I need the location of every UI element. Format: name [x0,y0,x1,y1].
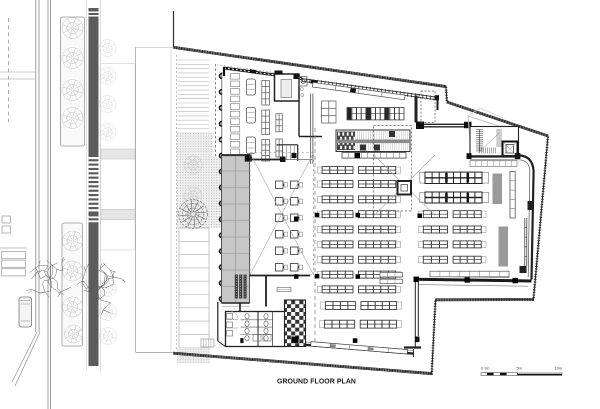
svg-text:GROUND FLOOR PLAN: GROUND FLOOR PLAN [277,379,356,386]
svg-text:10m: 10m [555,366,562,370]
svg-text:0 1m: 0 1m [481,366,489,370]
svg-text:5m: 5m [517,366,522,370]
